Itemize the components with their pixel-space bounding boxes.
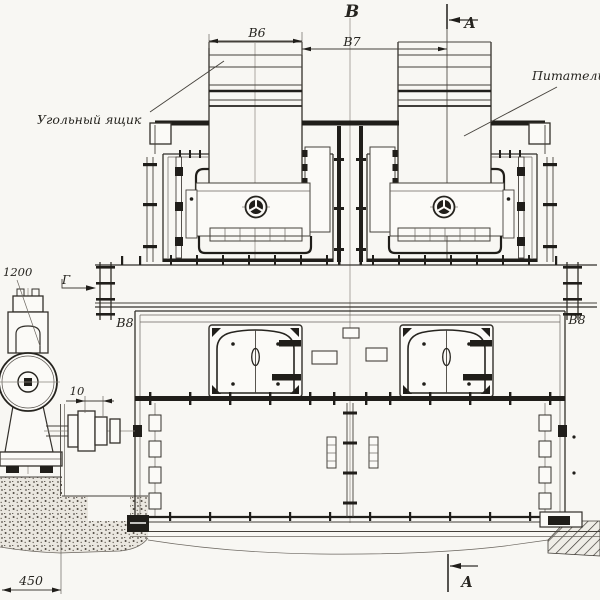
callout-coal-box: Угольный ящик	[37, 61, 224, 127]
view-b-label: В	[344, 2, 359, 22]
dim-450-label: 450	[18, 573, 43, 588]
section-a-bottom-label: А	[460, 574, 473, 591]
dimension-b7: В7	[302, 34, 447, 51]
section-a-top-label: А	[463, 15, 476, 32]
coal-chute-left	[209, 42, 302, 183]
coupling	[44, 411, 135, 451]
right-foot	[540, 512, 582, 527]
technical-drawing: В6 В7 В А А Г В8 В8 1200 10	[0, 0, 600, 600]
dim-1200-label: 1200	[3, 265, 32, 279]
access-door-left	[209, 325, 302, 397]
dim-10-label: 10	[70, 384, 85, 398]
access-door-right	[400, 325, 493, 397]
dimension-b6: В6	[209, 25, 302, 55]
coal-box-leader-line	[150, 61, 224, 112]
view-marker-g: Г	[61, 272, 96, 291]
louver-right	[369, 437, 378, 468]
concrete-stipple	[0, 477, 148, 553]
dim-b6-label: В6	[247, 25, 265, 40]
coal-chute-right	[398, 42, 491, 183]
sight-port-left	[312, 351, 337, 364]
sight-port-center	[343, 328, 359, 338]
feeder-label: Питатель	[531, 68, 600, 83]
feeder-housing-right	[367, 147, 557, 265]
coal-box-label: Угольный ящик	[37, 112, 142, 127]
drawing-canvas: В6 В7 В А А Г В8 В8 1200 10	[0, 0, 600, 600]
center-lines	[255, 4, 447, 523]
dim-b8-right-label: В8	[567, 312, 585, 327]
gearbox-body	[5, 406, 53, 452]
ground-line	[148, 540, 548, 554]
drive-unit	[0, 288, 65, 496]
sight-port-right	[366, 348, 387, 361]
lower-casing	[127, 401, 600, 537]
dim-b7-label: В7	[342, 34, 360, 49]
view-g-label: Г	[61, 272, 71, 287]
section-marker-a-top: А	[447, 4, 478, 32]
dim-b8-left-label: В8	[115, 315, 133, 330]
section-marker-a-bottom: А	[448, 554, 478, 592]
louver-left	[327, 437, 336, 468]
feeder-housing-left	[143, 147, 333, 265]
view-marker-b: В	[344, 2, 359, 22]
